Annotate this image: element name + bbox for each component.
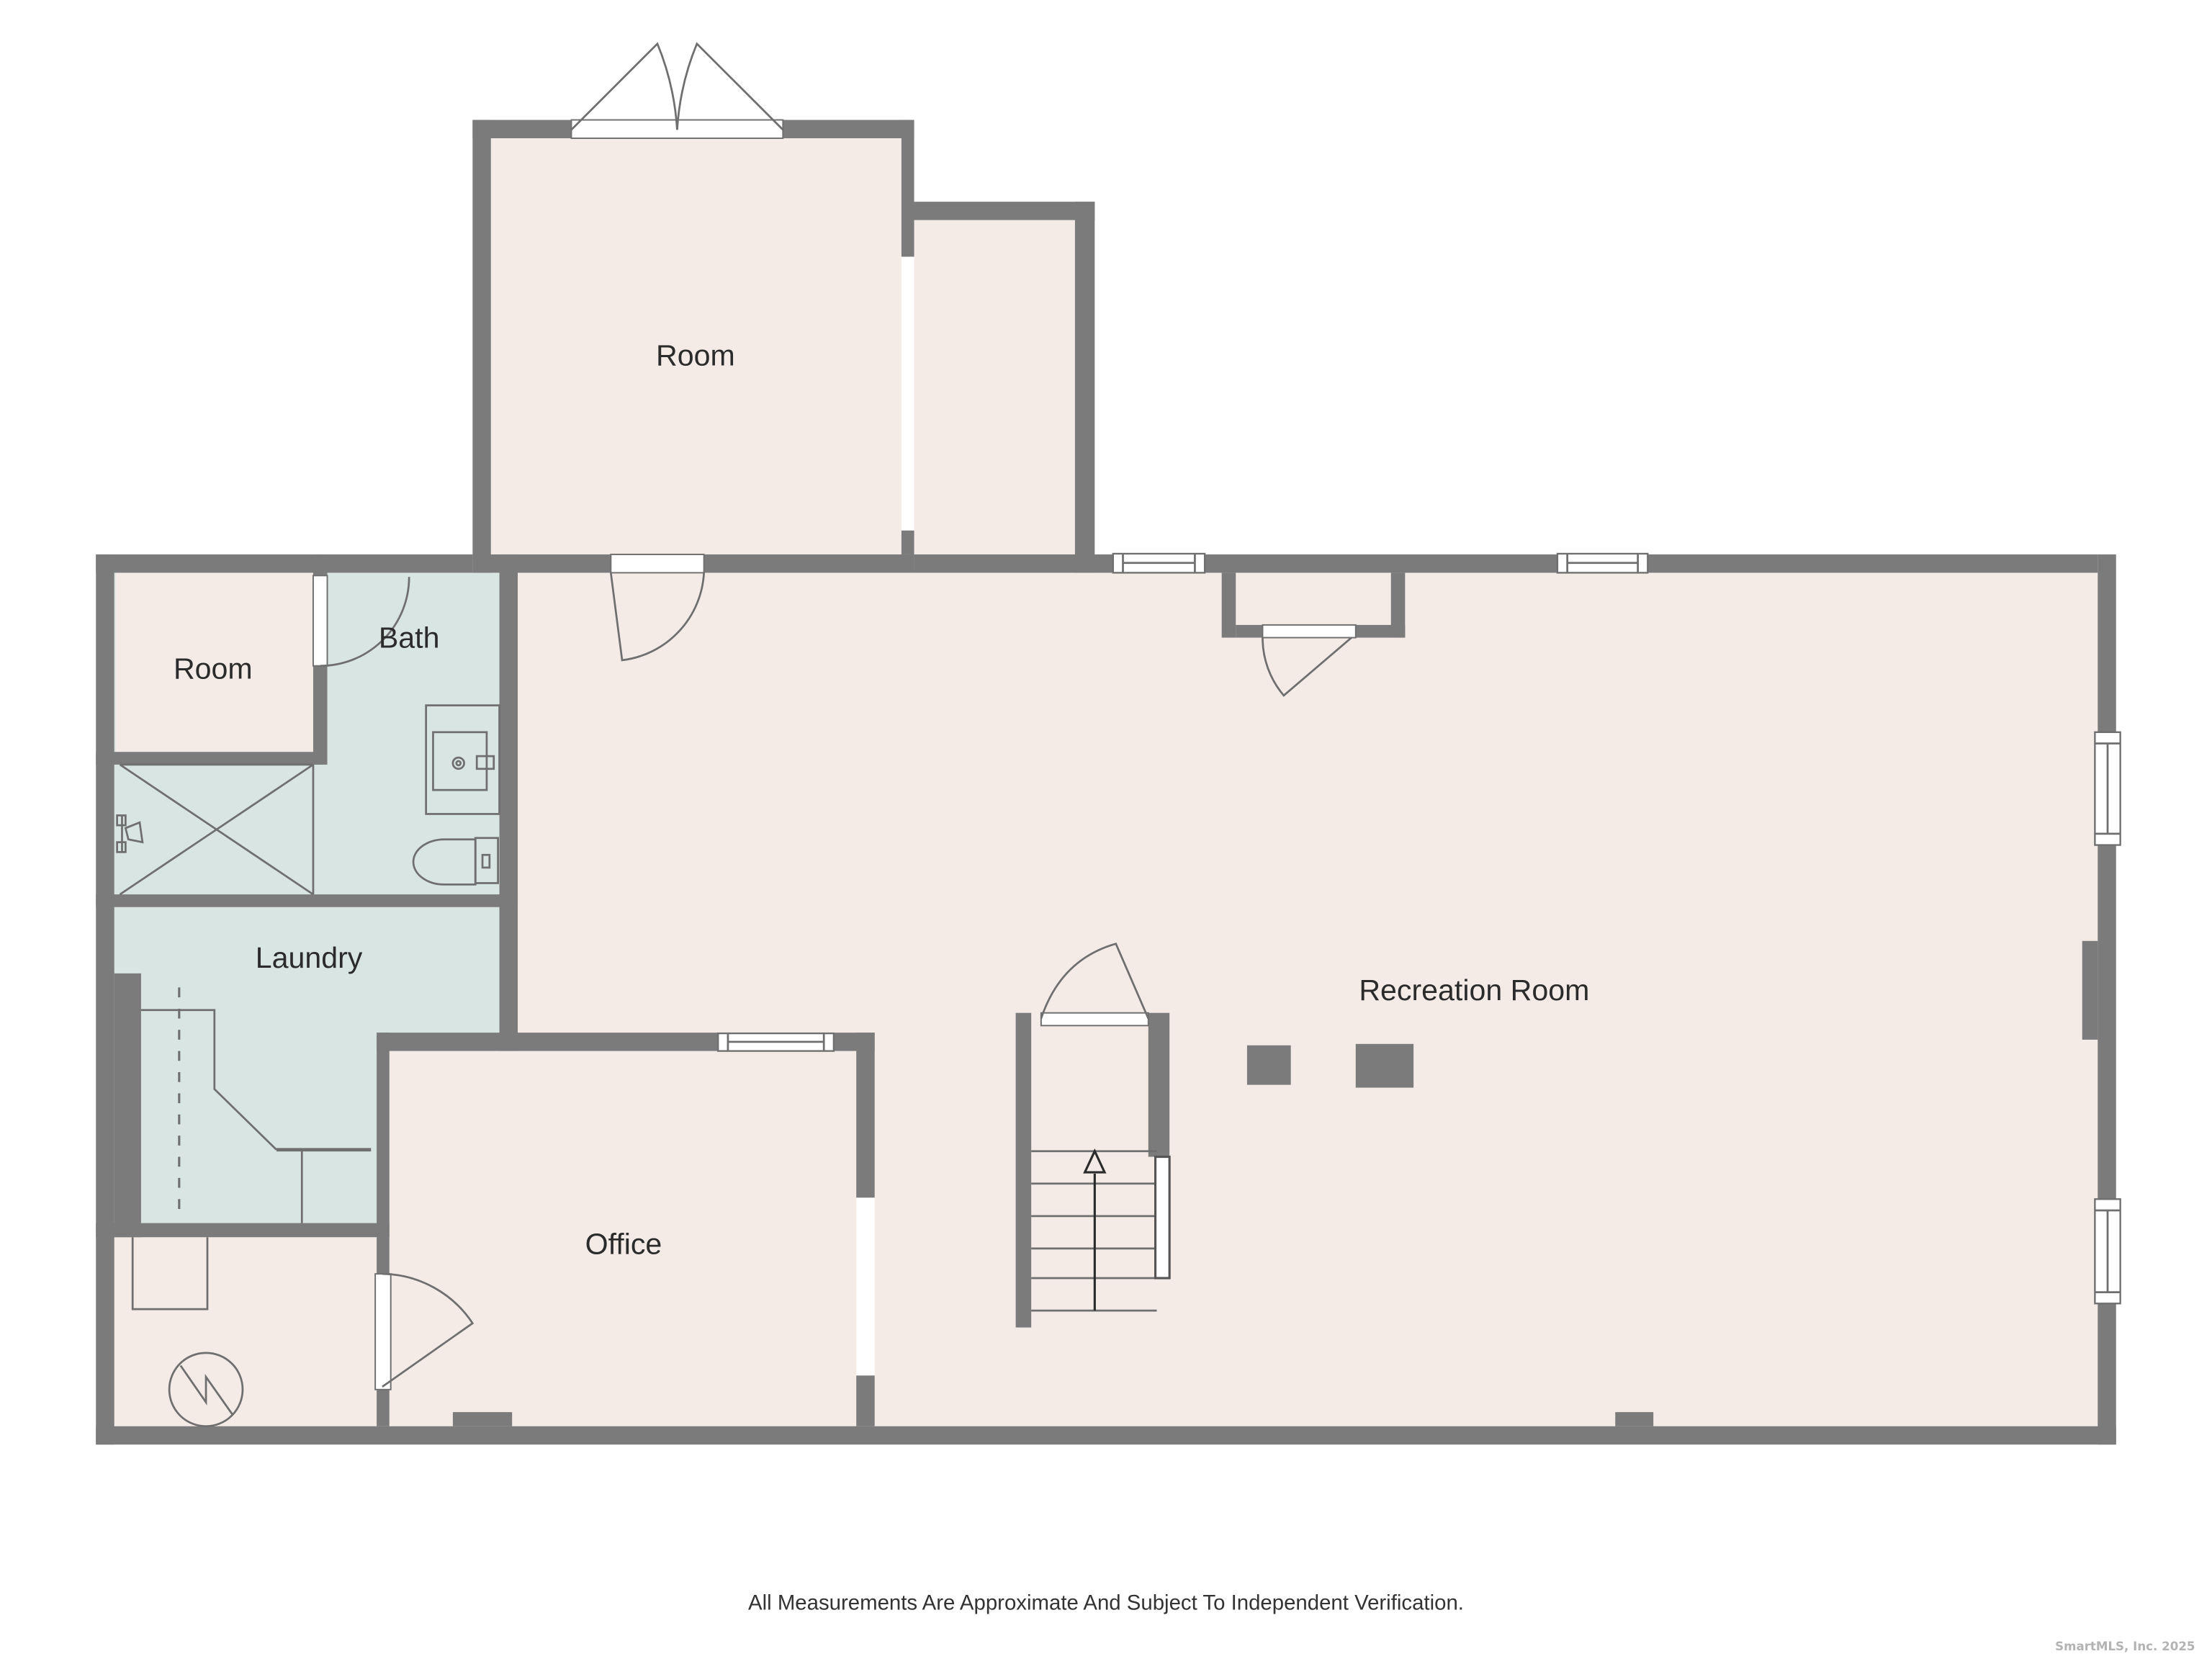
window-office: [718, 1033, 834, 1051]
office-wall-stub: [453, 1412, 512, 1426]
top-room-label: Room: [656, 338, 735, 372]
room-opening: [902, 257, 914, 531]
wall-left: [96, 554, 114, 1444]
alcove-floor: [1236, 572, 1391, 624]
side-room-top-floor: [914, 220, 1075, 554]
small-room-wall-bottom: [96, 752, 325, 765]
window-top-1: [1113, 554, 1205, 572]
post: [1247, 1046, 1291, 1085]
office-opening: [856, 1197, 874, 1375]
floor-plan-page: Room Room Bath Laundry Office Recreation…: [0, 0, 2212, 1659]
top-room-wall-left: [472, 120, 490, 573]
bath-label: Bath: [379, 621, 440, 654]
side-room-label: Room: [174, 652, 253, 685]
wall-bottom: [96, 1426, 2116, 1444]
floor-plan-drawing: Room Room Bath Laundry Office Recreation…: [0, 0, 2212, 1659]
side-room-wall-top: [909, 202, 1095, 220]
laundry-bottom-wall: [96, 1223, 390, 1238]
stair-railing: [1156, 1157, 1170, 1278]
stair-wall-left: [1016, 1013, 1032, 1328]
office-label: Office: [585, 1228, 662, 1261]
floors: [114, 138, 2098, 1426]
top-room-wall-top-right: [783, 120, 914, 138]
office-wall-top-left: [377, 1033, 718, 1051]
laundry-label: Laundry: [256, 941, 363, 974]
bottom-wall-stub: [1615, 1412, 1653, 1426]
recreation-room-label: Recreation Room: [1359, 974, 1589, 1007]
window-top-2: [1557, 554, 1647, 572]
window-right-2: [2095, 1199, 2120, 1303]
wall-right: [2098, 554, 2116, 1444]
post: [1356, 1044, 1413, 1088]
disclaimer-text: All Measurements Are Approximate And Sub…: [748, 1591, 1464, 1614]
watermark: SmartMLS, Inc. 2025: [2055, 1640, 2195, 1653]
side-room-wall-right: [1075, 202, 1094, 572]
left-wing-divider-wall: [500, 554, 518, 1051]
window-right-1: [2095, 732, 2120, 845]
bath-laundry-wall: [96, 894, 518, 907]
double-door-top: [571, 44, 783, 138]
chimney-pilaster: [2082, 941, 2098, 1040]
stair-wall-right: [1148, 1013, 1169, 1157]
